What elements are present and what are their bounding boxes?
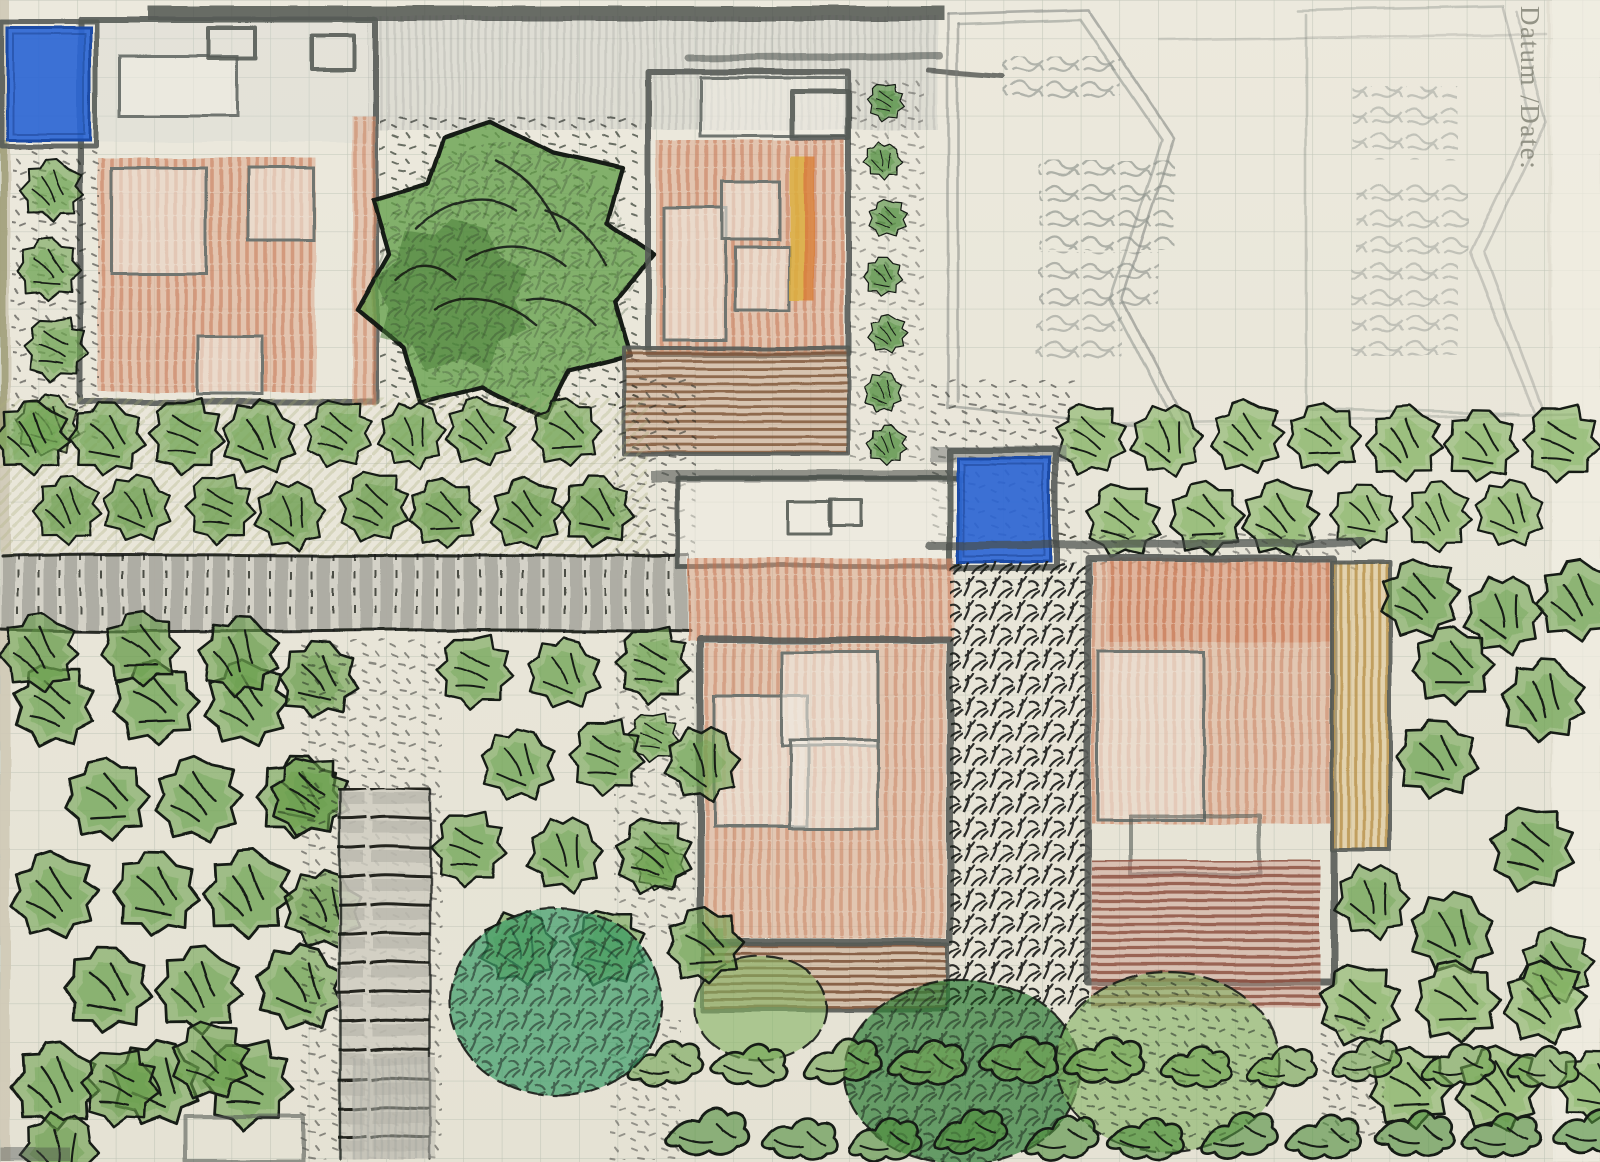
house-c-room — [1098, 652, 1204, 820]
site-plan-scan: Datum /Date: — [0, 0, 1600, 1162]
sketch-fill — [1038, 252, 1158, 314]
house-b-room — [664, 208, 726, 340]
house-b-room — [736, 248, 790, 310]
sketch-fill — [1352, 264, 1458, 356]
house-c-floor-band — [688, 558, 954, 642]
house-a-room — [248, 168, 314, 240]
house-c-topwall — [930, 542, 1362, 546]
house-c-room — [782, 652, 878, 746]
roofline — [688, 56, 940, 58]
sketch-fill — [1002, 56, 1120, 104]
steps-lower — [352, 1058, 436, 1160]
datum-date-label: Datum /Date: — [1514, 6, 1545, 170]
rug-orange — [804, 156, 814, 300]
house-a-room — [112, 168, 206, 274]
sketch-fill — [1036, 314, 1122, 366]
path-edge — [0, 630, 690, 632]
sketch-fill — [1356, 178, 1468, 264]
house-a-room-top — [120, 56, 238, 116]
smudge-bl — [0, 1148, 70, 1162]
sleeper-path — [0, 554, 690, 632]
house-c-wing — [678, 478, 960, 566]
court-wall-west — [352, 116, 376, 406]
deck-tan — [1332, 562, 1390, 850]
grass-court — [950, 562, 1090, 1010]
pool-a — [8, 28, 90, 140]
house-b-room-top — [700, 78, 846, 136]
house-c-room — [790, 740, 878, 828]
wing-roofband — [652, 470, 964, 482]
house-b-room — [722, 182, 780, 240]
site-plan-sketch — [0, 0, 1600, 1162]
rug-yellow — [790, 156, 804, 300]
sketch-fill — [1352, 86, 1458, 160]
house-a-room — [198, 336, 262, 394]
sketch-fill — [1040, 160, 1174, 250]
